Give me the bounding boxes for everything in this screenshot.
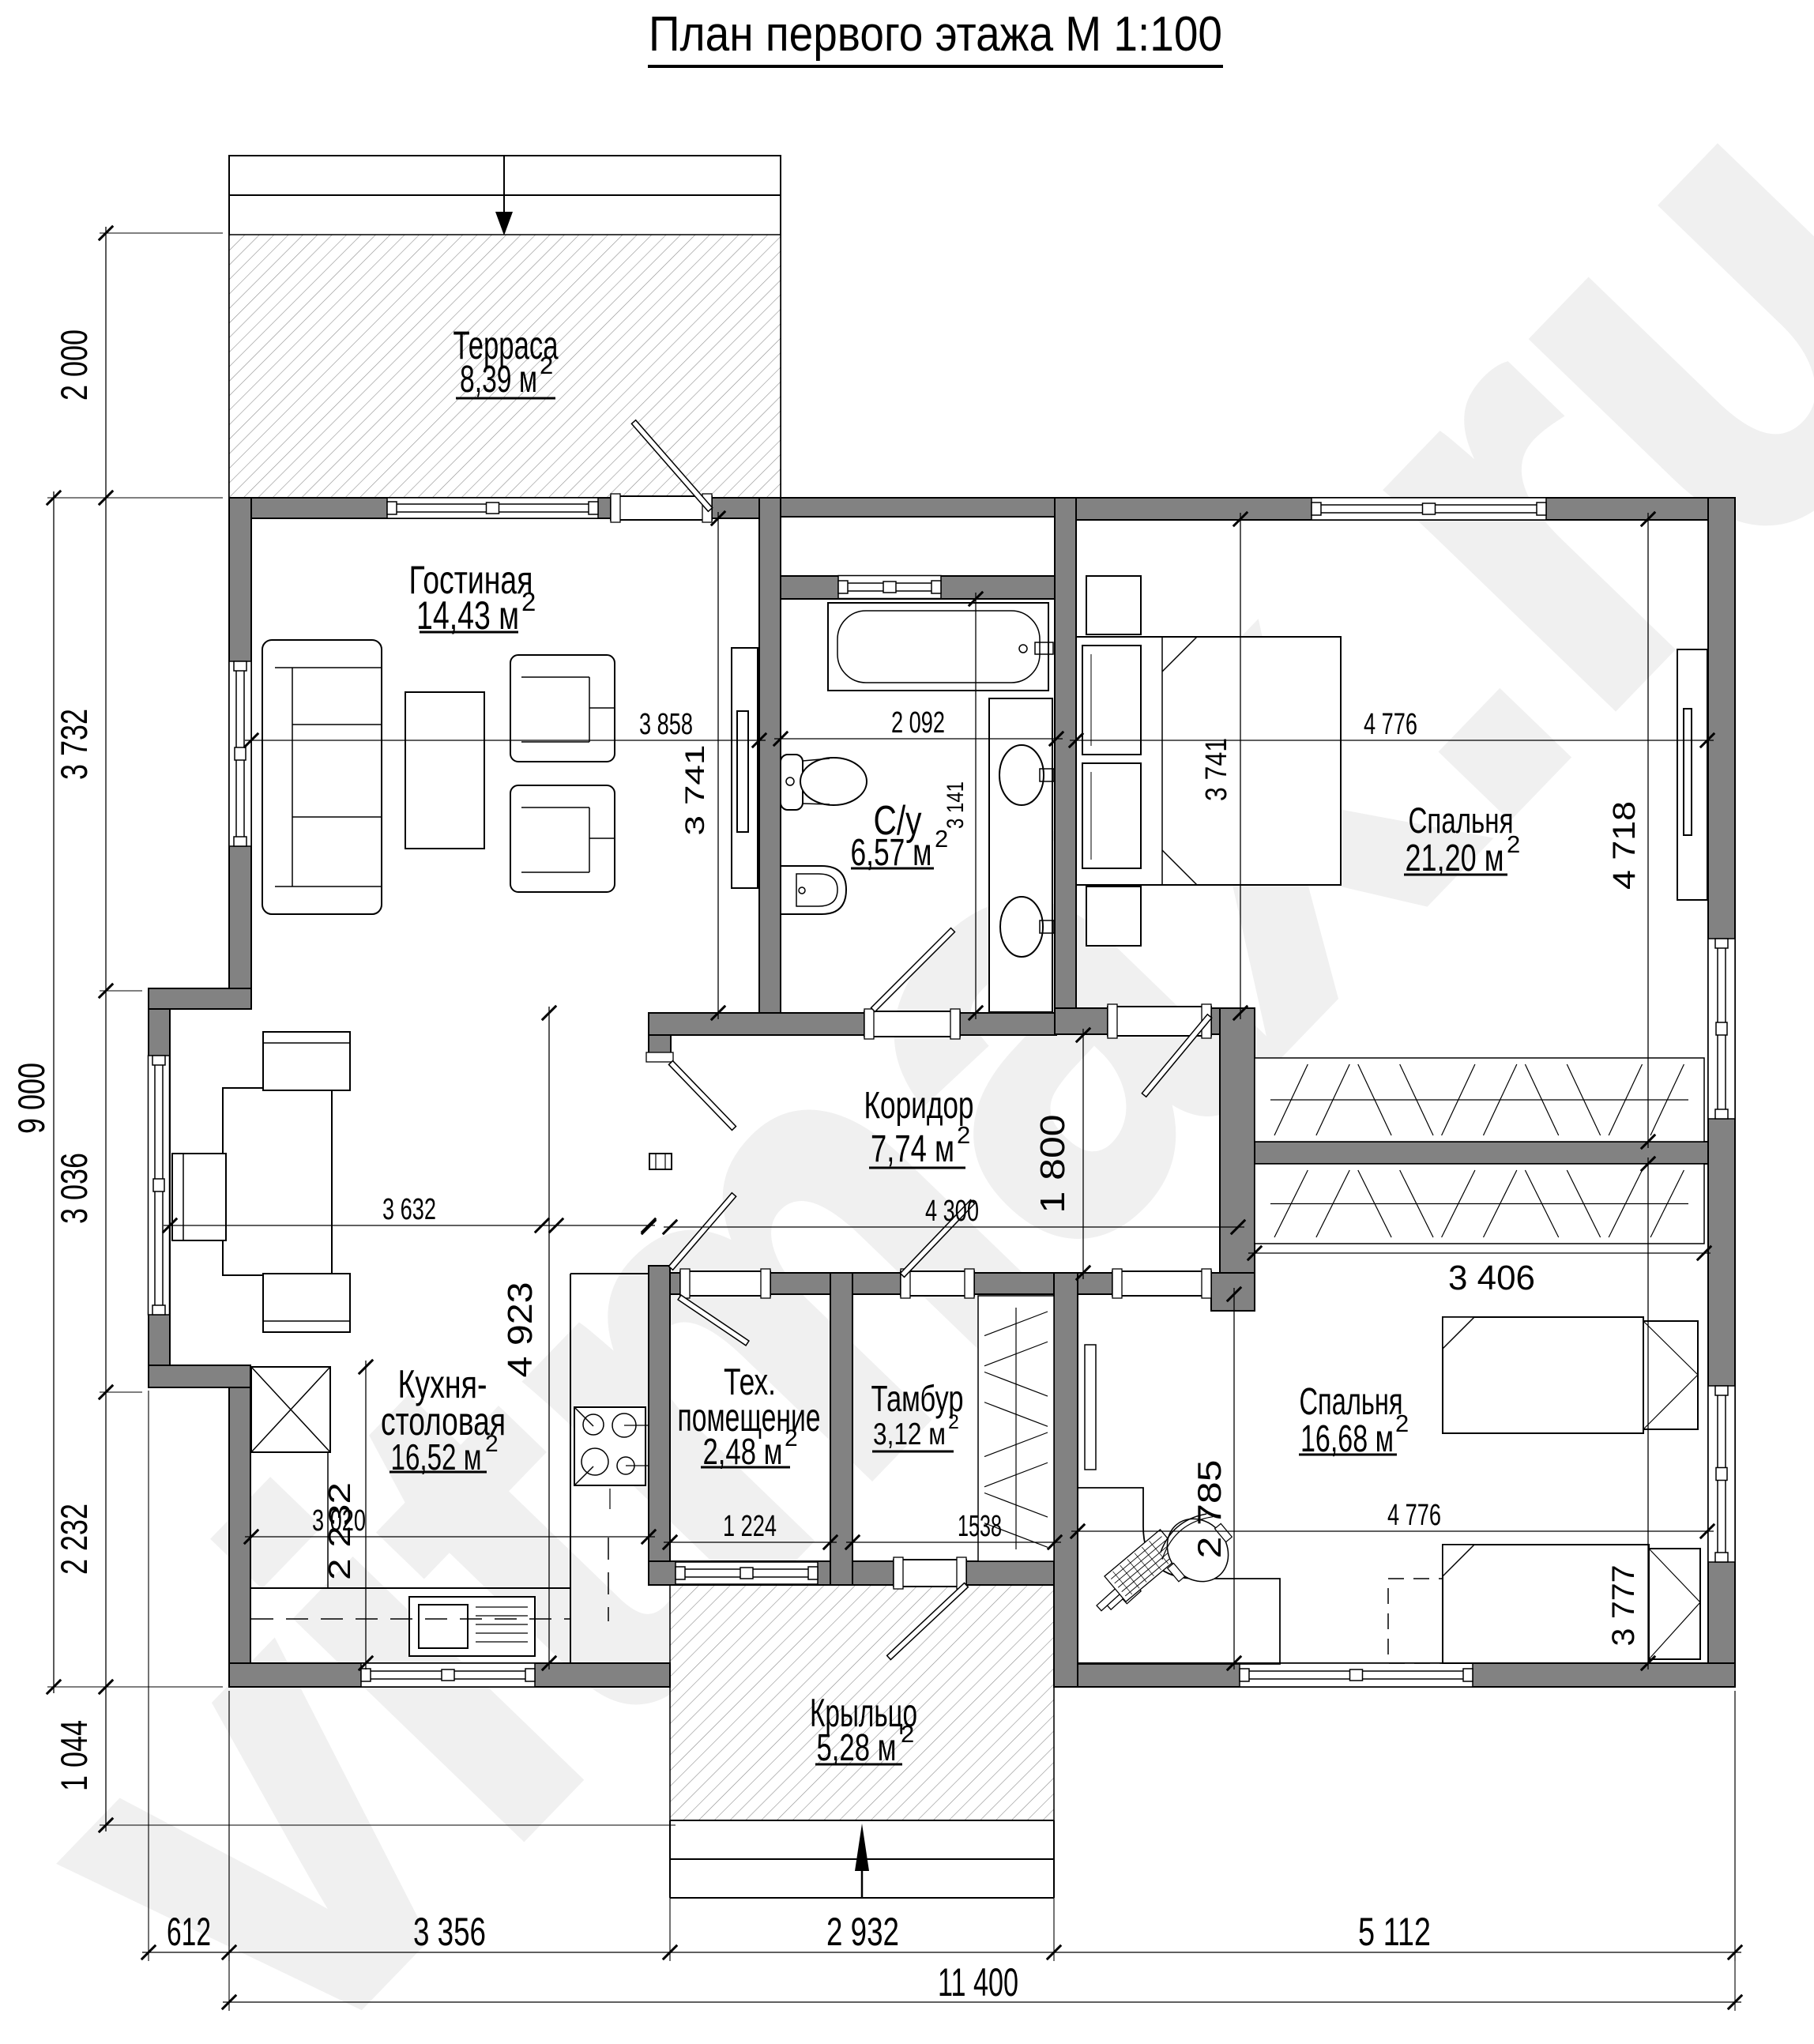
svg-text:2: 2	[935, 825, 948, 853]
svg-text:8,39 м: 8,39 м	[460, 359, 537, 401]
svg-text:612: 612	[167, 1910, 211, 1954]
svg-text:2 000: 2 000	[53, 329, 95, 401]
svg-text:4 776: 4 776	[1387, 1499, 1441, 1532]
svg-text:Спальня: Спальня	[1409, 800, 1514, 841]
svg-text:2: 2	[540, 352, 553, 379]
svg-text:3 732: 3 732	[53, 709, 95, 780]
svg-text:1 800: 1 800	[1033, 1115, 1072, 1214]
svg-text:3 356: 3 356	[413, 1910, 486, 1954]
svg-text:2: 2	[957, 1121, 970, 1149]
svg-text:7,74 м: 7,74 м	[871, 1128, 954, 1170]
svg-text:2 232: 2 232	[53, 1504, 95, 1575]
svg-text:4 718: 4 718	[1607, 801, 1642, 890]
svg-text:2: 2	[1395, 1410, 1409, 1437]
svg-text:4 776: 4 776	[1364, 708, 1417, 741]
svg-text:1 044: 1 044	[53, 1720, 95, 1791]
svg-text:3 036: 3 036	[53, 1153, 95, 1224]
svg-text:3 858: 3 858	[639, 708, 693, 741]
svg-text:Спальня: Спальня	[1300, 1381, 1403, 1423]
svg-text:1538: 1538	[958, 1510, 1002, 1543]
svg-text:2 785: 2 785	[1191, 1460, 1228, 1559]
svg-text:21,20 м: 21,20 м	[1406, 838, 1504, 879]
svg-text:2 932: 2 932	[826, 1910, 899, 1954]
svg-text:2: 2	[785, 1425, 798, 1451]
svg-text:2: 2	[1507, 830, 1520, 858]
svg-text:1 224: 1 224	[723, 1510, 777, 1543]
svg-text:2: 2	[948, 1411, 959, 1433]
svg-text:3 141: 3 141	[943, 781, 969, 829]
svg-text:3 406: 3 406	[1448, 1259, 1535, 1297]
svg-text:3 741: 3 741	[1200, 738, 1233, 801]
svg-text:3 020: 3 020	[312, 1504, 366, 1538]
svg-text:5 112: 5 112	[1358, 1910, 1431, 1954]
svg-text:2 092: 2 092	[891, 706, 945, 740]
svg-text:2: 2	[485, 1431, 499, 1457]
svg-text:2,48 м: 2,48 м	[703, 1431, 783, 1472]
svg-text:3 741: 3 741	[680, 745, 710, 836]
svg-text:4 923: 4 923	[501, 1282, 540, 1378]
svg-text:9 000: 9 000	[10, 1063, 52, 1134]
svg-text:3 777: 3 777	[1606, 1565, 1641, 1647]
svg-text:План первого этажа М 1:100: План первого этажа М 1:100	[649, 7, 1222, 62]
svg-text:4 300: 4 300	[925, 1195, 979, 1228]
svg-text:2: 2	[521, 587, 536, 616]
svg-text:5,28 м: 5,28 м	[817, 1727, 897, 1769]
svg-text:2: 2	[901, 1720, 914, 1748]
svg-text:11 400: 11 400	[938, 1960, 1018, 2004]
svg-text:3 632: 3 632	[382, 1193, 436, 1226]
svg-text:3,12 м: 3,12 м	[873, 1417, 946, 1451]
